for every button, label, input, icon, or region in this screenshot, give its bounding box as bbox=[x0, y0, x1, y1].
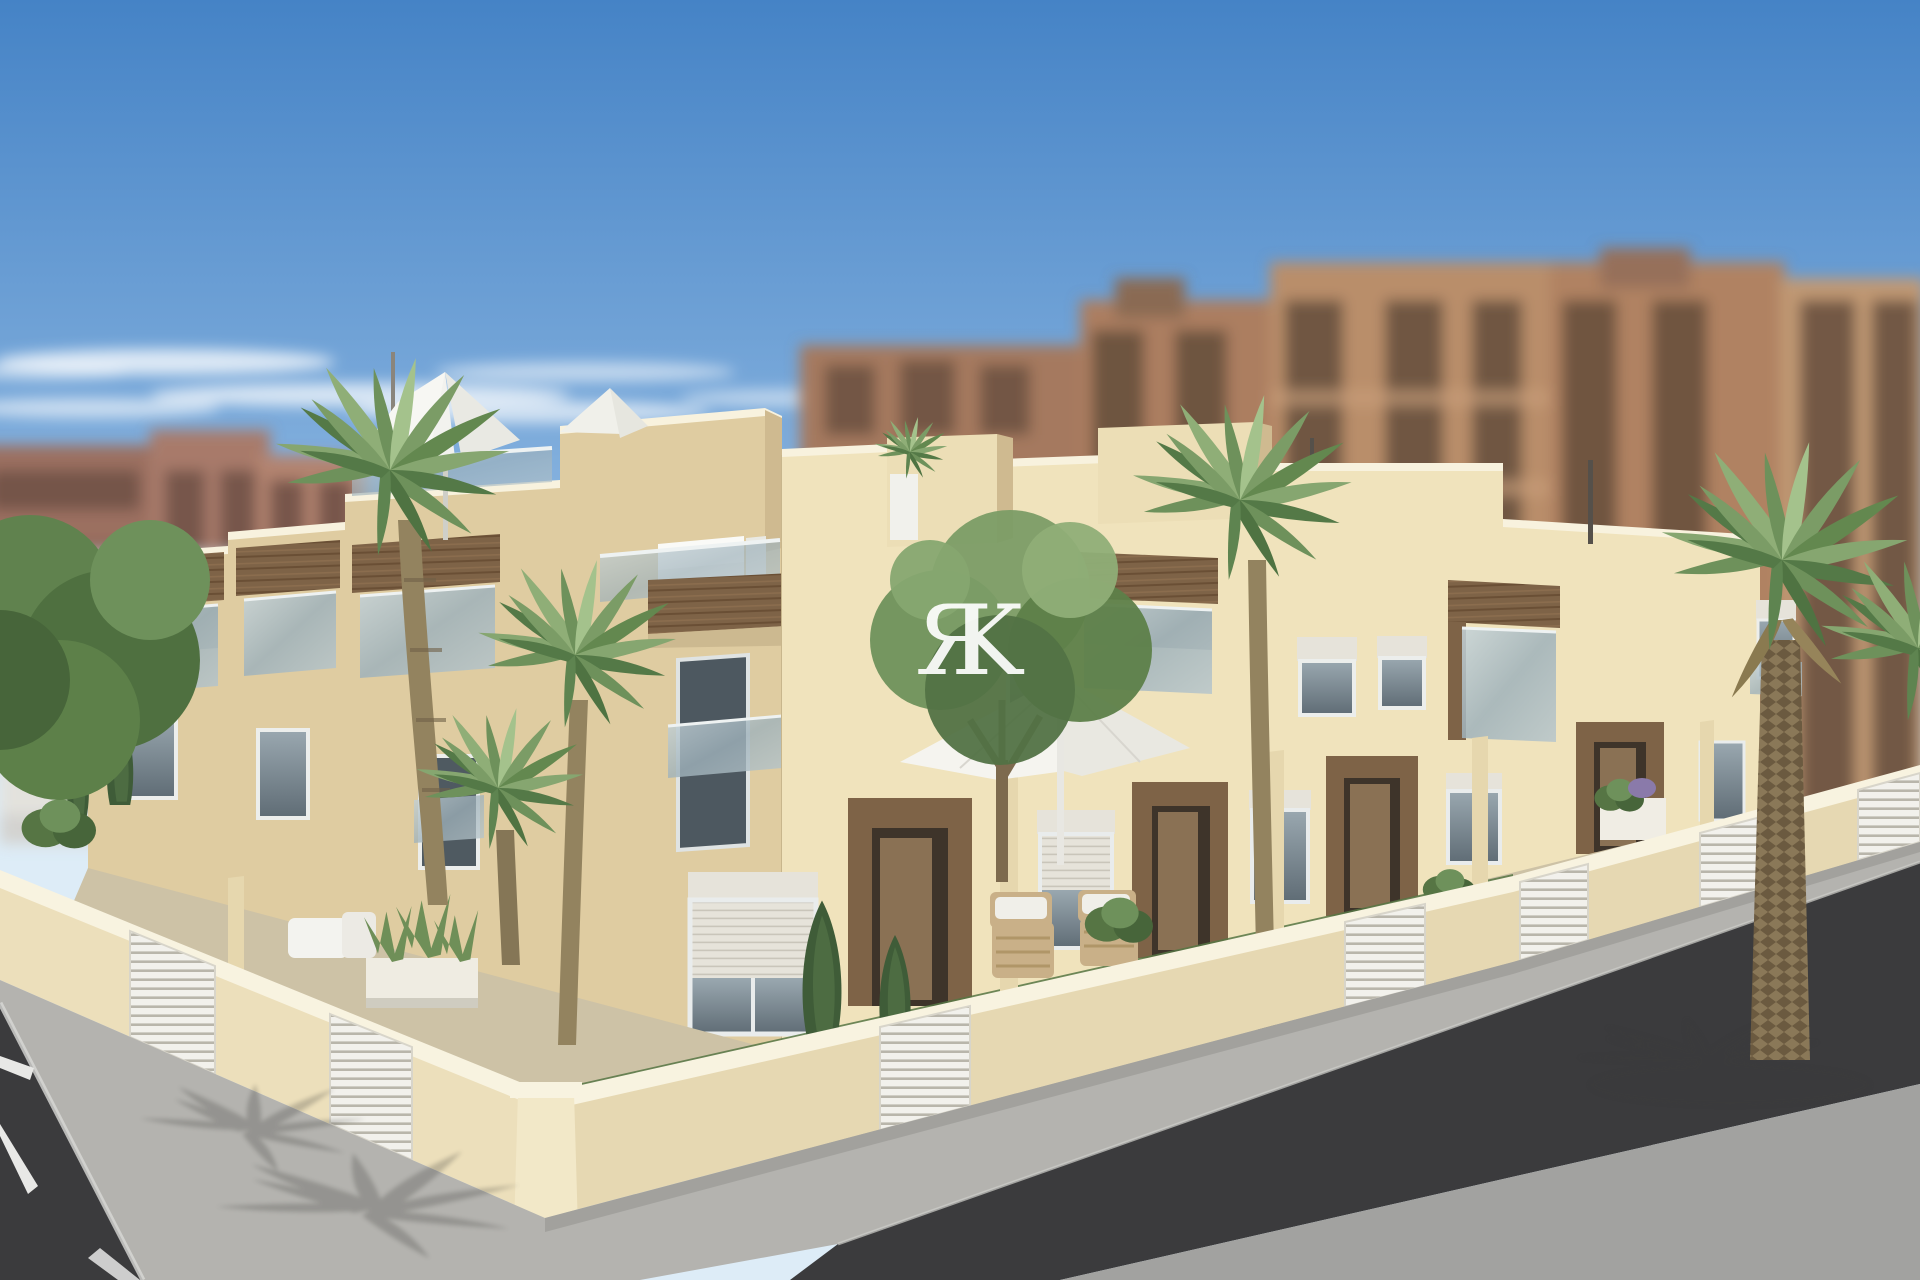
window-b bbox=[258, 730, 308, 818]
entrance-door-3 bbox=[1326, 756, 1418, 916]
roof-chimney bbox=[1588, 460, 1593, 544]
window-r4 bbox=[1377, 636, 1427, 708]
balcony-glass-b bbox=[244, 592, 336, 676]
left-yard-furniture bbox=[288, 912, 376, 958]
wood-beam-b bbox=[236, 540, 340, 596]
watermark-letter-k: K bbox=[951, 585, 1025, 697]
right-yard-planter bbox=[1594, 778, 1666, 840]
penthouse-return bbox=[765, 410, 782, 552]
window-w1 bbox=[688, 872, 818, 1034]
balcony-b3 bbox=[1448, 580, 1560, 742]
watermark: Я K bbox=[915, 585, 1025, 697]
entrance-door-1 bbox=[848, 798, 972, 1006]
window-r3 bbox=[1297, 637, 1357, 715]
property-render-image: Я K bbox=[0, 0, 1920, 1280]
